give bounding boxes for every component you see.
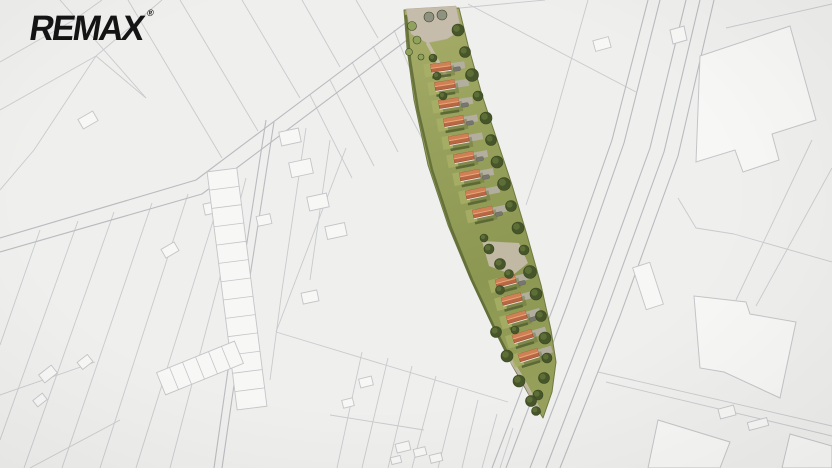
tree-icon-highlight: [532, 407, 537, 412]
car: [461, 102, 469, 107]
tree-icon: [536, 311, 547, 322]
tree-icon: [495, 259, 506, 270]
tree-icon-highlight: [474, 92, 480, 98]
bush-icon-canopy: [413, 36, 421, 44]
tree-icon-highlight: [492, 157, 499, 164]
bush-icon-canopy: [406, 49, 413, 56]
tree-icon-highlight: [467, 70, 474, 77]
gray-bush-icon: [424, 12, 434, 22]
tree-icon-highlight: [505, 270, 510, 275]
tree-icon: [484, 244, 494, 254]
tree-icon: [452, 24, 464, 36]
car-body: [453, 67, 460, 72]
tree-icon-highlight: [512, 327, 516, 331]
tree-icon-highlight: [502, 351, 509, 358]
tree-icon-highlight: [507, 202, 513, 208]
tree-icon: [539, 332, 551, 344]
tree-icon-highlight: [485, 245, 491, 251]
tree-icon: [512, 222, 524, 234]
tree-icon: [539, 373, 550, 384]
tree-icon-highlight: [487, 136, 493, 142]
screenshot-root: REMAX®: [0, 0, 832, 468]
tree-icon-highlight: [540, 333, 547, 340]
tree-icon-highlight: [531, 289, 538, 296]
car-body: [461, 102, 469, 107]
tree-icon: [473, 91, 483, 101]
tree-icon: [542, 353, 552, 363]
tree-icon-highlight: [481, 235, 485, 239]
tree-icon-highlight: [430, 55, 434, 59]
gray-bush-icon: [437, 10, 447, 20]
remax-logo: REMAX®: [27, 11, 152, 46]
bush-icon-canopy: [408, 22, 417, 31]
tree-icon-highlight: [527, 397, 533, 403]
tree-icon-highlight: [461, 48, 467, 54]
tree-icon: [511, 326, 519, 334]
tree-icon: [491, 156, 503, 168]
tree-icon: [519, 245, 529, 255]
tree-icon-highlight: [440, 93, 444, 97]
tree-icon: [524, 266, 537, 279]
tree-icon-highlight: [537, 312, 543, 318]
tree-icon: [501, 350, 513, 362]
tree-icon: [513, 375, 525, 387]
tree-icon-highlight: [496, 286, 501, 291]
bush-icon: [408, 22, 417, 31]
tree-icon-highlight: [534, 391, 540, 397]
tree-icon-highlight: [513, 223, 520, 230]
map-canvas: [0, 0, 832, 468]
tree-icon: [460, 47, 471, 58]
tree-icon: [530, 288, 542, 300]
tree-icon-highlight: [499, 179, 506, 186]
tree-icon-highlight: [543, 354, 549, 360]
bush-icon: [406, 49, 413, 56]
tree-icon: [491, 327, 502, 338]
tree-icon-highlight: [540, 374, 546, 380]
remax-logo-text: REMAX: [27, 9, 146, 49]
tree-icon: [429, 54, 437, 62]
bush-icon: [418, 54, 424, 60]
tree-icon-highlight: [514, 376, 521, 383]
tree-icon: [505, 270, 514, 279]
tree-icon: [532, 407, 541, 416]
tree-icon-highlight: [492, 328, 498, 334]
tree-icon-highlight: [434, 73, 438, 77]
tree-icon-highlight: [496, 260, 502, 266]
gray-bush-icon-canopy: [437, 10, 447, 20]
tree-icon: [526, 396, 537, 407]
car: [453, 67, 460, 72]
tree-icon: [480, 234, 488, 242]
bush-icon-canopy: [418, 54, 424, 60]
tree-icon: [498, 178, 511, 191]
tree-icon-highlight: [525, 267, 532, 274]
gray-bush-icon-canopy: [424, 12, 434, 22]
tree-icon-highlight: [481, 113, 488, 120]
tree-icon: [480, 112, 492, 124]
tree-icon-highlight: [453, 25, 460, 32]
tree-icon: [439, 92, 447, 100]
tree-icon: [433, 72, 441, 80]
tree-icon: [466, 69, 479, 82]
tree-icon-highlight: [520, 246, 526, 252]
tree-icon: [506, 201, 517, 212]
bush-icon: [413, 36, 421, 44]
tree-icon: [486, 135, 497, 146]
tree-icon: [496, 286, 505, 295]
